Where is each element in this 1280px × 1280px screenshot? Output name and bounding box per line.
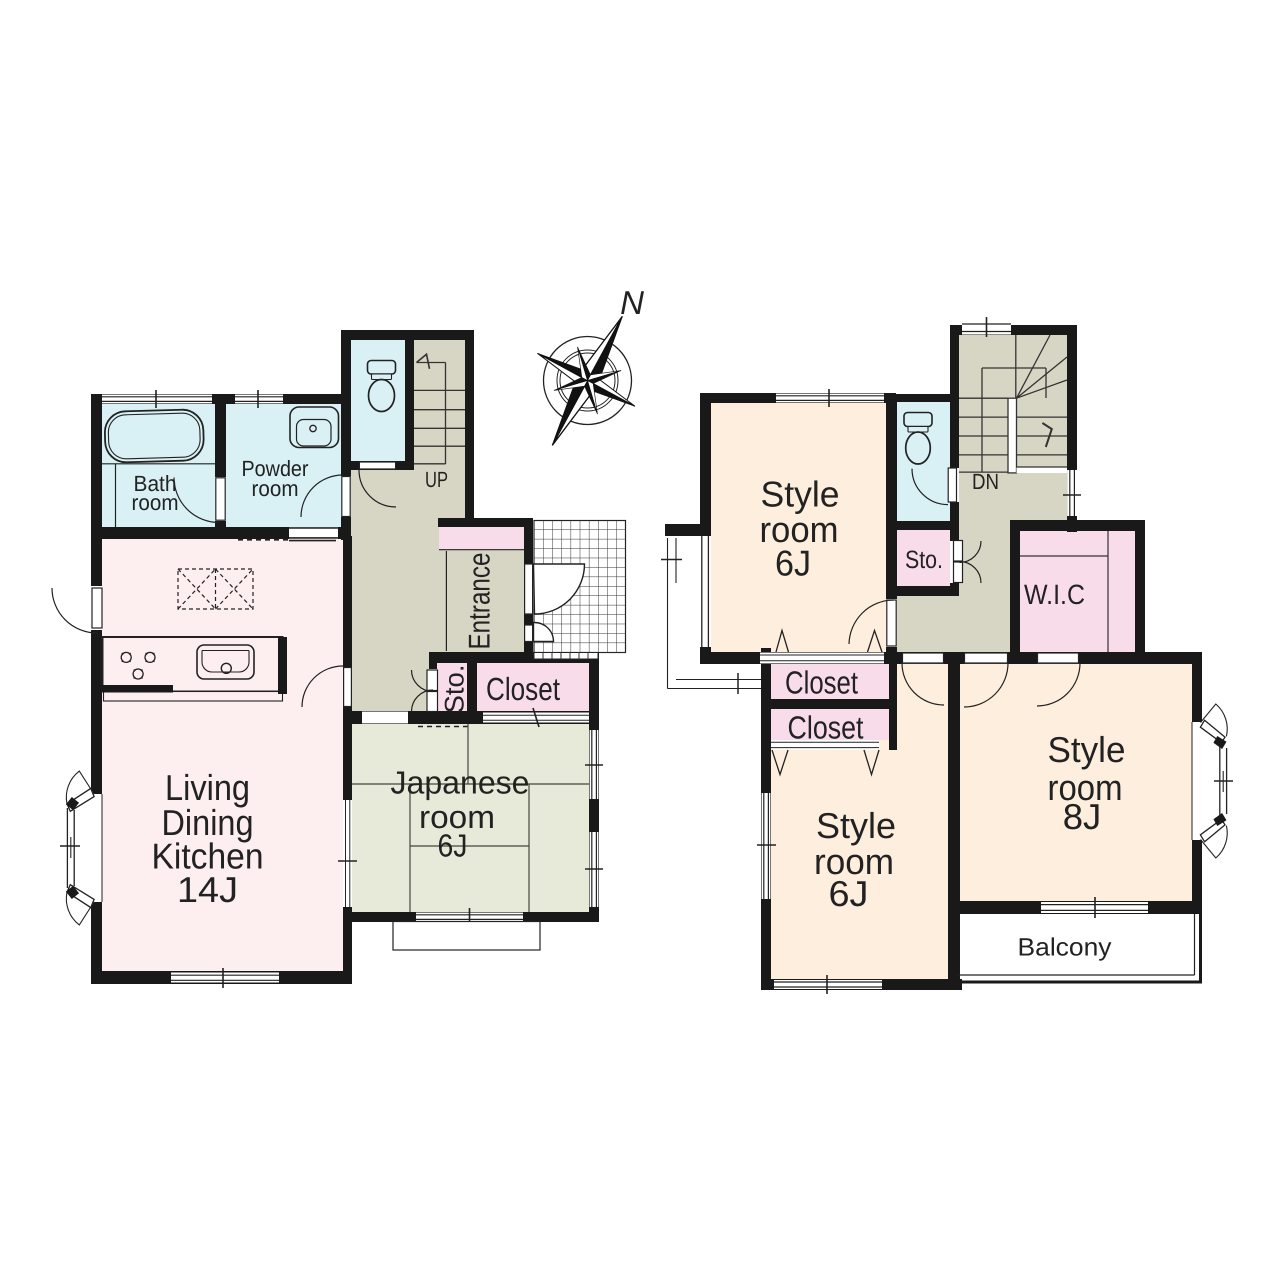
svg-text:Style: Style <box>816 805 896 846</box>
svg-text:N: N <box>620 284 644 321</box>
svg-text:Closet: Closet <box>486 671 560 707</box>
svg-text:6J: 6J <box>829 873 869 914</box>
svg-text:Sto.: Sto. <box>905 546 943 574</box>
svg-text:W.I.C: W.I.C <box>1024 579 1085 610</box>
svg-text:Closet: Closet <box>785 665 858 701</box>
svg-text:Sto.: Sto. <box>440 665 470 714</box>
svg-text:Style: Style <box>1048 729 1126 770</box>
svg-text:6J: 6J <box>775 543 811 584</box>
svg-text:Closet: Closet <box>788 710 864 746</box>
svg-text:Balcony: Balcony <box>1018 934 1113 962</box>
svg-text:room: room <box>132 490 179 515</box>
svg-text:8J: 8J <box>1063 796 1102 837</box>
svg-text:14J: 14J <box>177 869 238 910</box>
svg-text:UP: UP <box>425 467 448 492</box>
svg-text:6J: 6J <box>438 828 468 864</box>
svg-text:room: room <box>252 476 299 501</box>
svg-text:DN: DN <box>972 469 999 494</box>
svg-text:Entrance: Entrance <box>464 553 497 650</box>
svg-text:Japanese: Japanese <box>391 765 530 801</box>
